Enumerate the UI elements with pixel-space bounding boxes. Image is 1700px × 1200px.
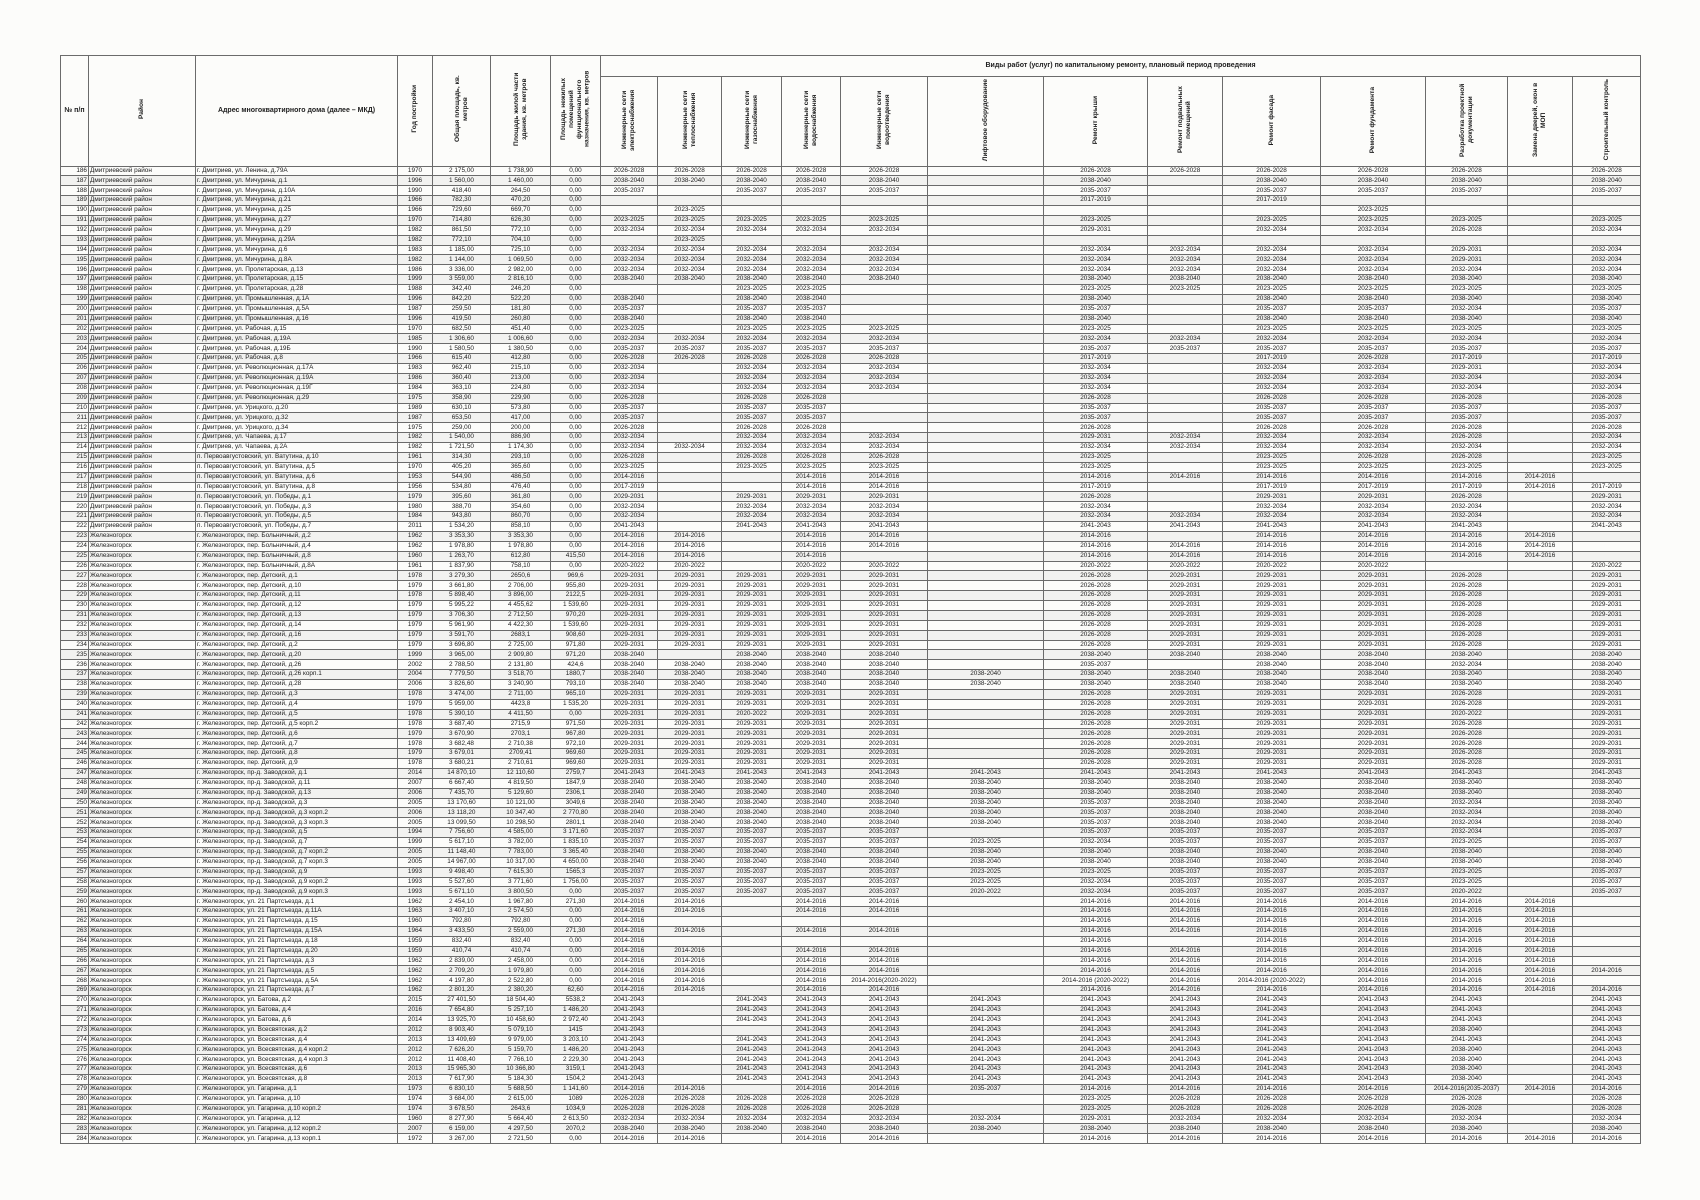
- cell-doors-windows: [1508, 877, 1573, 887]
- cell-doors-windows: 2014-2016: [1508, 531, 1573, 541]
- cell-area-total: 861,50: [433, 225, 491, 235]
- cell-elec: 2041-2043: [601, 1055, 658, 1065]
- cell-facade: 2014-2016: [1223, 541, 1321, 551]
- cell-num: 192: [61, 225, 89, 235]
- cell-elec: 2026-2028: [601, 452, 658, 462]
- cell-design-docs: 2038-2040: [1426, 788, 1508, 798]
- cell-basement: [1148, 403, 1223, 413]
- cell-gas: 2032-2034: [722, 225, 782, 235]
- cell-foundation: 2017-2019: [1321, 482, 1426, 492]
- cell-elevator: [928, 344, 1044, 354]
- cell-sewer: 2029-2031: [841, 709, 928, 719]
- cell-district: Железногорск: [89, 1015, 196, 1025]
- cell-construction-control: [1573, 976, 1641, 986]
- cell-area-nonliving: 0,00: [551, 255, 601, 265]
- cell-construction-control: [1573, 531, 1641, 541]
- cell-address: г. Железногорск, пер. Детский, д.12: [196, 601, 398, 611]
- cell-elevator: [928, 759, 1044, 769]
- cell-district: Дмитриевский район: [89, 393, 196, 403]
- cell-year: 1982: [398, 255, 433, 265]
- cell-sewer: 2014-2016: [841, 531, 928, 541]
- cell-basement: 2035-2037: [1148, 838, 1223, 848]
- cell-area-nonliving: 0,00: [551, 452, 601, 462]
- cell-construction-control: [1573, 551, 1641, 561]
- cell-sewer: 2029-2031: [841, 759, 928, 769]
- cell-area-nonliving: 2122,5: [551, 591, 601, 601]
- cell-construction-control: 2014-2016: [1573, 986, 1641, 996]
- cell-district: Железногорск: [89, 946, 196, 956]
- table-row: 189Дмитриевский районг. Дмитриев, ул. Ми…: [61, 196, 1641, 206]
- cell-water: 2029-2031: [782, 610, 841, 620]
- cell-roof: 2032-2034: [1044, 245, 1148, 255]
- cell-design-docs: 2017-2019: [1426, 482, 1508, 492]
- cell-roof: 2041-2043: [1044, 1035, 1148, 1045]
- cell-year: 2016: [398, 1005, 433, 1015]
- cell-address: г. Железногорск, ул. Всесвятская, д.4 ко…: [196, 1045, 398, 1055]
- cell-year: 1961: [398, 561, 433, 571]
- cell-district: Железногорск: [89, 897, 196, 907]
- cell-district: Дмитриевский район: [89, 196, 196, 206]
- cell-roof: 2035-2037: [1044, 186, 1148, 196]
- cell-num: 215: [61, 452, 89, 462]
- cell-foundation: 2014-2016: [1321, 966, 1426, 976]
- cell-design-docs: 2014-2016: [1426, 936, 1508, 946]
- cell-year: 1979: [398, 630, 433, 640]
- cell-address: г. Дмитриев, ул. Мичурина, д.27: [196, 215, 398, 225]
- cell-facade: 2014-2016: [1223, 551, 1321, 561]
- cell-construction-control: 2041-2043: [1573, 768, 1641, 778]
- cell-area-living: 669,70: [491, 206, 551, 216]
- cell-basement: 2014-2016: [1148, 926, 1223, 936]
- cell-construction-control: 2017-2019: [1573, 354, 1641, 364]
- cell-num: 265: [61, 946, 89, 956]
- cell-area-living: 10 366,80: [491, 1065, 551, 1075]
- table-row: 207Дмитриевский районг. Дмитриев, ул. Ре…: [61, 373, 1641, 383]
- cell-year: 2006: [398, 680, 433, 690]
- cell-foundation: 2032-2034: [1321, 433, 1426, 443]
- cell-address: г. Железногорск, ул. 21 Партсъезда, д.15…: [196, 926, 398, 936]
- cell-year: 2013: [398, 1075, 433, 1085]
- cell-foundation: 2038-2040: [1321, 798, 1426, 808]
- cell-area-total: 395,60: [433, 492, 491, 502]
- cell-construction-control: 2029-2031: [1573, 689, 1641, 699]
- cell-design-docs: 2041-2043: [1426, 1035, 1508, 1045]
- cell-design-docs: 2026-2028: [1426, 1094, 1508, 1104]
- cell-doors-windows: [1508, 235, 1573, 245]
- cell-year: 2007: [398, 778, 433, 788]
- cell-area-total: 13 170,60: [433, 798, 491, 808]
- cell-area-living: 4 819,50: [491, 778, 551, 788]
- cell-area-living: 224,80: [491, 383, 551, 393]
- cell-heat: [658, 482, 722, 492]
- cell-sewer: 2014-2016: [841, 956, 928, 966]
- table-row: 218Дмитриевский районп. Первоавгустовски…: [61, 482, 1641, 492]
- cell-area-living: 451,40: [491, 324, 551, 334]
- cell-water: 2032-2034: [782, 334, 841, 344]
- cell-area-total: 630,10: [433, 403, 491, 413]
- table-row: 223Железногорскг. Железногорск, пер. Бол…: [61, 531, 1641, 541]
- cell-foundation: [1321, 196, 1426, 206]
- cell-facade: [1223, 235, 1321, 245]
- cell-gas: 2035-2037: [722, 877, 782, 887]
- cell-address: г. Железногорск, пер. Больничный, д.4: [196, 541, 398, 551]
- cell-area-living: 2 380,20: [491, 986, 551, 996]
- cell-area-living: 7 766,10: [491, 1055, 551, 1065]
- cell-address: г. Железногорск, ул. 21 Партсъезда, д.7: [196, 986, 398, 996]
- cell-area-nonliving: 0,00: [551, 522, 601, 532]
- cell-design-docs: 2032-2034: [1426, 512, 1508, 522]
- cell-design-docs: 2023-2025: [1426, 838, 1508, 848]
- cell-sewer: [841, 314, 928, 324]
- cell-facade: 2014-2016: [1223, 986, 1321, 996]
- cell-basement: 2041-2043: [1148, 996, 1223, 1006]
- cell-address: г. Железногорск, ул. Батова, д.4: [196, 1005, 398, 1015]
- cell-design-docs: 2035-2037: [1426, 344, 1508, 354]
- cell-construction-control: 2041-2043: [1573, 1055, 1641, 1065]
- cell-elec: 2038-2040: [601, 1124, 658, 1134]
- cell-construction-control: 2032-2034: [1573, 373, 1641, 383]
- cell-year: 1988: [398, 285, 433, 295]
- cell-heat: [658, 403, 722, 413]
- cell-doors-windows: [1508, 571, 1573, 581]
- table-row: 232Железногорскг. Железногорск, пер. Дет…: [61, 620, 1641, 630]
- cell-design-docs: 2038-2040: [1426, 670, 1508, 680]
- cell-sewer: 2041-2043: [841, 768, 928, 778]
- cell-foundation: 2038-2040: [1321, 857, 1426, 867]
- cell-roof: 2014-2016: [1044, 551, 1148, 561]
- cell-foundation: 2023-2025: [1321, 215, 1426, 225]
- table-row: 195Дмитриевский районг. Дмитриев, ул. Ми…: [61, 255, 1641, 265]
- cell-facade: 2026-2028: [1223, 166, 1321, 176]
- cell-area-living: 1 006,60: [491, 334, 551, 344]
- cell-area-total: 1 721,50: [433, 443, 491, 453]
- cell-doors-windows: [1508, 689, 1573, 699]
- cell-basement: 2029-2031: [1148, 630, 1223, 640]
- cell-area-living: 7 783,00: [491, 847, 551, 857]
- cell-area-living: 2683,1: [491, 630, 551, 640]
- cell-year: 1962: [398, 966, 433, 976]
- cell-foundation: 2026-2028: [1321, 452, 1426, 462]
- cell-gas: 2041-2043: [722, 1035, 782, 1045]
- cell-water: 2032-2034: [782, 433, 841, 443]
- cell-elec: 2014-2016: [601, 541, 658, 551]
- col-header-gas: Инженерные сети газоснабжения: [722, 77, 782, 167]
- cell-address: г. Железногорск, пр-д. Заводской, д.9 ко…: [196, 877, 398, 887]
- cell-sewer: 2020-2022: [841, 561, 928, 571]
- cell-district: Железногорск: [89, 808, 196, 818]
- cell-roof: 2041-2043: [1044, 1005, 1148, 1015]
- cell-elec: 2032-2034: [601, 512, 658, 522]
- cell-roof: 2026-2028: [1044, 729, 1148, 739]
- cell-construction-control: 2038-2040: [1573, 176, 1641, 186]
- cell-sewer: [841, 423, 928, 433]
- cell-elec: 2026-2028: [601, 166, 658, 176]
- cell-district: Железногорск: [89, 1124, 196, 1134]
- cell-num: 225: [61, 551, 89, 561]
- cell-area-total: 615,40: [433, 354, 491, 364]
- cell-area-nonliving: 955,80: [551, 581, 601, 591]
- cell-foundation: 2032-2034: [1321, 443, 1426, 453]
- table-row: 280Железногорскг. Железногорск, ул. Гага…: [61, 1094, 1641, 1104]
- cell-year: 1975: [398, 423, 433, 433]
- cell-num: 204: [61, 344, 89, 354]
- cell-year: 1979: [398, 749, 433, 759]
- cell-water: 2035-2037: [782, 867, 841, 877]
- cell-foundation: 2020-2022: [1321, 561, 1426, 571]
- cell-water: 2014-2016: [782, 926, 841, 936]
- cell-heat: 2026-2028: [658, 166, 722, 176]
- cell-num: 267: [61, 966, 89, 976]
- cell-basement: [1148, 502, 1223, 512]
- cell-foundation: 2029-2031: [1321, 729, 1426, 739]
- cell-gas: 2029-2031: [722, 689, 782, 699]
- cell-sewer: 2041-2043: [841, 1035, 928, 1045]
- cell-water: 2038-2040: [782, 314, 841, 324]
- cell-facade: 2035-2037: [1223, 867, 1321, 877]
- cell-area-living: 1 738,90: [491, 166, 551, 176]
- cell-basement: 2014-2016: [1148, 917, 1223, 927]
- cell-area-nonliving: 0,00: [551, 304, 601, 314]
- cell-gas: [722, 986, 782, 996]
- cell-design-docs: 2020-2022: [1426, 887, 1508, 897]
- cell-year: 1996: [398, 176, 433, 186]
- cell-area-nonliving: 0,00: [551, 344, 601, 354]
- cell-basement: 2029-2031: [1148, 689, 1223, 699]
- cell-area-total: 419,50: [433, 314, 491, 324]
- table-row: 225Железногорскг. Железногорск, пер. Бол…: [61, 551, 1641, 561]
- table-row: 249Железногорскг. Железногорск, пр-д. За…: [61, 788, 1641, 798]
- cell-area-total: 7 779,50: [433, 670, 491, 680]
- cell-area-total: 3 661,80: [433, 581, 491, 591]
- cell-sewer: 2014-2016: [841, 926, 928, 936]
- cell-sewer: [841, 393, 928, 403]
- cell-facade: 2041-2043: [1223, 1025, 1321, 1035]
- cell-foundation: 2014-2016: [1321, 1084, 1426, 1094]
- cell-gas: 2035-2037: [722, 413, 782, 423]
- scanned-document-sheet: № п/п Район Адрес многоквартирного дома …: [0, 0, 1700, 1200]
- cell-num: 211: [61, 413, 89, 423]
- cell-heat: [658, 452, 722, 462]
- cell-roof: 2029-2031: [1044, 433, 1148, 443]
- table-row: 266Железногорскг. Железногорск, ул. 21 П…: [61, 956, 1641, 966]
- cell-year: 1986: [398, 265, 433, 275]
- cell-area-nonliving: 970,20: [551, 610, 601, 620]
- cell-roof: 2026-2028: [1044, 719, 1148, 729]
- cell-heat: [658, 314, 722, 324]
- cell-elevator: [928, 650, 1044, 660]
- cell-gas: 2029-2031: [722, 630, 782, 640]
- cell-doors-windows: [1508, 847, 1573, 857]
- cell-district: Железногорск: [89, 1065, 196, 1075]
- cell-elevator: [928, 591, 1044, 601]
- cell-foundation: 2032-2034: [1321, 373, 1426, 383]
- cell-sewer: 2029-2031: [841, 689, 928, 699]
- cell-doors-windows: [1508, 403, 1573, 413]
- cell-roof: 2029-2031: [1044, 1114, 1148, 1124]
- cell-doors-windows: [1508, 245, 1573, 255]
- cell-gas: 2032-2034: [722, 245, 782, 255]
- cell-doors-windows: [1508, 314, 1573, 324]
- cell-area-nonliving: 2070,2: [551, 1124, 601, 1134]
- cell-foundation: 2035-2037: [1321, 877, 1426, 887]
- cell-address: г. Дмитриев, ул. Урицкого, д.20: [196, 403, 398, 413]
- cell-roof: 2035-2037: [1044, 344, 1148, 354]
- cell-construction-control: 2014-2016: [1573, 966, 1641, 976]
- cell-district: Железногорск: [89, 887, 196, 897]
- cell-roof: 2035-2037: [1044, 304, 1148, 314]
- cell-num: 278: [61, 1075, 89, 1085]
- cell-address: г. Дмитриев, ул. Пролетарская, д.15: [196, 275, 398, 285]
- cell-sewer: 2029-2031: [841, 699, 928, 709]
- cell-foundation: 2035-2037: [1321, 887, 1426, 897]
- cell-heat: 2038-2040: [658, 670, 722, 680]
- cell-area-nonliving: 1089: [551, 1094, 601, 1104]
- cell-design-docs: 2038-2040: [1426, 1124, 1508, 1134]
- cell-area-nonliving: 1 539,60: [551, 601, 601, 611]
- cell-design-docs: 2041-2043: [1426, 1005, 1508, 1015]
- cell-design-docs: 2038-2040: [1426, 314, 1508, 324]
- cell-gas: 2038-2040: [722, 808, 782, 818]
- cell-elec: 2041-2043: [601, 1065, 658, 1075]
- cell-area-total: 5 527,60: [433, 877, 491, 887]
- cell-gas: 2038-2040: [722, 818, 782, 828]
- cell-elec: 2032-2034: [601, 443, 658, 453]
- cell-num: 238: [61, 680, 89, 690]
- cell-facade: 2029-2031: [1223, 492, 1321, 502]
- cell-elevator: [928, 502, 1044, 512]
- cell-area-nonliving: 0,00: [551, 531, 601, 541]
- cell-elec: 2038-2040: [601, 670, 658, 680]
- cell-area-total: 1 978,80: [433, 541, 491, 551]
- cell-area-living: 410,74: [491, 946, 551, 956]
- cell-basement: 2038-2040: [1148, 798, 1223, 808]
- cell-design-docs: 2014-2016: [1426, 472, 1508, 482]
- col-header-water: Инженерные сети водоснабжения: [782, 77, 841, 167]
- col-header-elec: Инженерные сети электроснабжения: [601, 77, 658, 167]
- cell-area-nonliving: 415,50: [551, 551, 601, 561]
- cell-heat: 2029-2031: [658, 739, 722, 749]
- cell-water: 2032-2034: [782, 265, 841, 275]
- cell-doors-windows: 2014-2016: [1508, 917, 1573, 927]
- cell-foundation: 2035-2037: [1321, 403, 1426, 413]
- cell-roof: 2023-2025: [1044, 285, 1148, 295]
- cell-elec: 2026-2028: [601, 1104, 658, 1114]
- cell-area-living: 5 257,10: [491, 1005, 551, 1015]
- cell-roof: 2014-2016: [1044, 946, 1148, 956]
- cell-address: г. Железногорск, пр-д. Заводской, д.9 ко…: [196, 887, 398, 897]
- cell-roof: 2020-2022: [1044, 561, 1148, 571]
- cell-area-nonliving: 0,00: [551, 936, 601, 946]
- cell-construction-control: 2029-2031: [1573, 610, 1641, 620]
- cell-gas: 2029-2031: [722, 492, 782, 502]
- cell-area-total: 3 687,40: [433, 719, 491, 729]
- cell-area-nonliving: 0,00: [551, 443, 601, 453]
- cell-sewer: 2041-2043: [841, 1025, 928, 1035]
- cell-elec: 2029-2031: [601, 581, 658, 591]
- cell-elevator: 2038-2040: [928, 808, 1044, 818]
- cell-area-living: 2709,41: [491, 749, 551, 759]
- cell-area-total: 9 498,40: [433, 867, 491, 877]
- cell-area-total: 3 680,21: [433, 759, 491, 769]
- cell-area-total: 5 390,10: [433, 709, 491, 719]
- cell-design-docs: 2038-2040: [1426, 1025, 1508, 1035]
- cell-area-total: 8 903,40: [433, 1025, 491, 1035]
- cell-area-living: 2 710,61: [491, 759, 551, 769]
- cell-roof: 2032-2034: [1044, 373, 1148, 383]
- cell-construction-control: 2041-2043: [1573, 1075, 1641, 1085]
- cell-design-docs: 2017-2019: [1426, 354, 1508, 364]
- cell-foundation: 2038-2040: [1321, 808, 1426, 818]
- cell-elec: 2017-2019: [601, 482, 658, 492]
- cell-area-living: 4423,8: [491, 699, 551, 709]
- cell-elec: 2035-2037: [601, 887, 658, 897]
- cell-num: 266: [61, 956, 89, 966]
- cell-construction-control: 2017-2019: [1573, 482, 1641, 492]
- table-row: 211Дмитриевский районг. Дмитриев, ул. Ур…: [61, 413, 1641, 423]
- cell-design-docs: 2026-2028: [1426, 699, 1508, 709]
- cell-district: Железногорск: [89, 1094, 196, 1104]
- cell-elevator: 2041-2043: [928, 1055, 1044, 1065]
- cell-facade: 2041-2043: [1223, 522, 1321, 532]
- cell-elec: 2014-2016: [601, 966, 658, 976]
- cell-year: 1994: [398, 828, 433, 838]
- cell-area-nonliving: 0,00: [551, 1134, 601, 1144]
- cell-foundation: 2026-2028: [1321, 423, 1426, 433]
- cell-heat: [658, 462, 722, 472]
- cell-construction-control: 2038-2040: [1573, 275, 1641, 285]
- cell-water: 2032-2034: [782, 225, 841, 235]
- cell-roof: 2014-2016: [1044, 541, 1148, 551]
- cell-num: 229: [61, 591, 89, 601]
- cell-water: 2014-2016: [782, 946, 841, 956]
- cell-address: г. Железногорск, пер. Детский, д.7: [196, 739, 398, 749]
- cell-roof: 2038-2040: [1044, 314, 1148, 324]
- cell-year: 1956: [398, 482, 433, 492]
- cell-water: 2023-2025: [782, 462, 841, 472]
- cell-gas: 2023-2025: [722, 462, 782, 472]
- cell-doors-windows: [1508, 265, 1573, 275]
- cell-doors-windows: [1508, 670, 1573, 680]
- cell-elec: 2032-2034: [601, 433, 658, 443]
- cell-elevator: [928, 601, 1044, 611]
- cell-gas: 2038-2040: [722, 314, 782, 324]
- cell-num: 230: [61, 601, 89, 611]
- cell-address: г. Железногорск, пр-д. Заводской, д.13: [196, 788, 398, 798]
- cell-district: Железногорск: [89, 926, 196, 936]
- cell-elec: 2035-2037: [601, 867, 658, 877]
- cell-area-living: 832,40: [491, 936, 551, 946]
- cell-area-living: 3 771,60: [491, 877, 551, 887]
- cell-doors-windows: [1508, 1045, 1573, 1055]
- cell-sewer: 2014-2016: [841, 897, 928, 907]
- cell-foundation: 2023-2025: [1321, 285, 1426, 295]
- cell-area-living: 9 979,00: [491, 1035, 551, 1045]
- cell-doors-windows: [1508, 443, 1573, 453]
- cell-sewer: 2014-2016: [841, 472, 928, 482]
- cell-doors-windows: [1508, 620, 1573, 630]
- cell-heat: [658, 492, 722, 502]
- cell-num: 257: [61, 867, 89, 877]
- cell-area-living: 4 455,62: [491, 601, 551, 611]
- cell-address: г. Железногорск, пр-д. Заводской, д.1: [196, 768, 398, 778]
- cell-area-total: 3 679,01: [433, 749, 491, 759]
- cell-elevator: [928, 956, 1044, 966]
- cell-elec: 2032-2034: [601, 334, 658, 344]
- cell-area-nonliving: 2306,1: [551, 788, 601, 798]
- cell-area-nonliving: 2801,1: [551, 818, 601, 828]
- cell-address: г. Дмитриев, ул. Рабочая, д.15: [196, 324, 398, 334]
- cell-basement: 2041-2043: [1148, 1075, 1223, 1085]
